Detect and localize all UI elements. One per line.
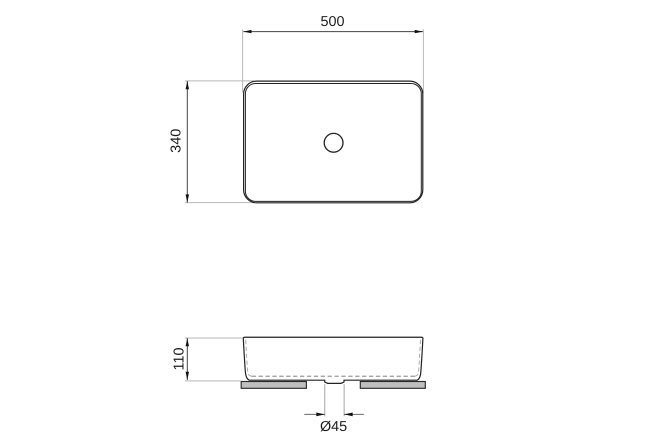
svg-text:Ø45: Ø45 — [320, 419, 347, 435]
svg-text:340: 340 — [169, 129, 185, 153]
svg-text:500: 500 — [320, 14, 344, 30]
svg-text:110: 110 — [171, 348, 187, 371]
